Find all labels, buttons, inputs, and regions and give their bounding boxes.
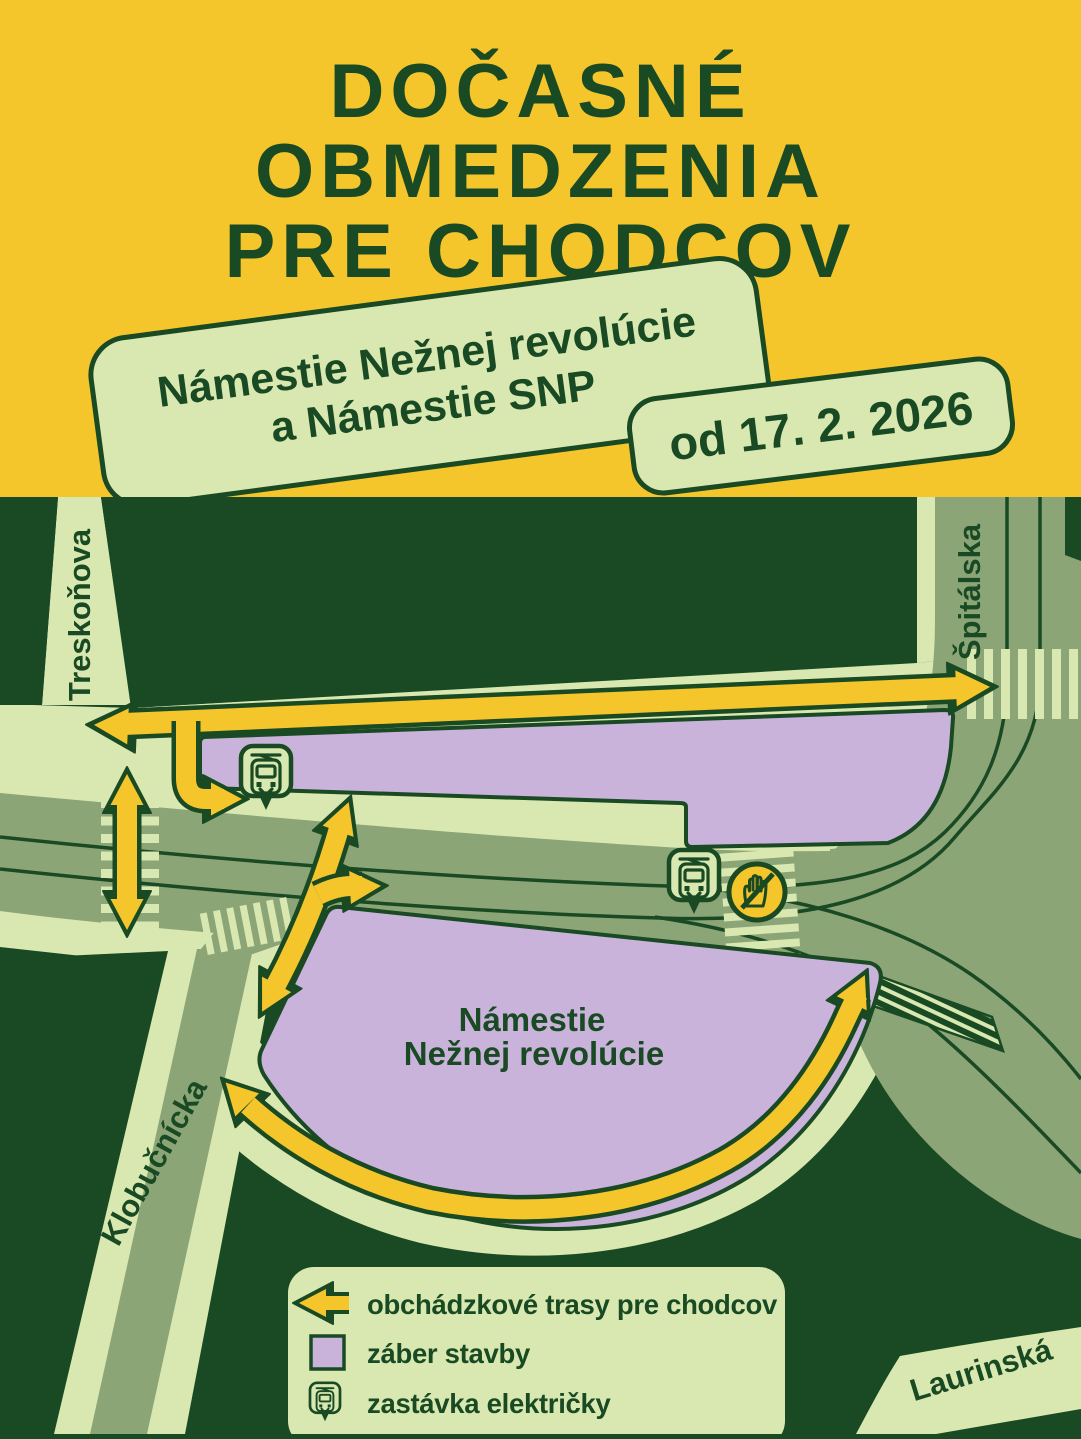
date-badge-text: od 17. 2. 2026 (666, 383, 976, 470)
title-line-2: OBMEDZENIA (0, 132, 1081, 212)
legend: obchádzkové trasy pre chodcov záber stav… (288, 1267, 785, 1434)
legend-item-detour-label: obchádzkové trasy pre chodcov (367, 1289, 778, 1320)
area-label-line-2: Nežnej revolúcie (404, 1035, 664, 1072)
area-label-line-1: Námestie (459, 1001, 606, 1038)
construction-area-swatch (311, 1336, 344, 1369)
street-label-spitalska: Špitálska (951, 523, 987, 660)
poster-title: DOČASNÉ OBMEDZENIA PRE CHODCOV (0, 52, 1081, 292)
title-line-1: DOČASNÉ (0, 52, 1081, 132)
spitalska-sidewalk (917, 497, 935, 663)
map-svg: Námestie Nežnej revolúcie (0, 497, 1081, 1434)
map: Námestie Nežnej revolúcie (0, 497, 1081, 1434)
building-northeast (1065, 497, 1081, 561)
poster-header: DOČASNÉ OBMEDZENIA PRE CHODCOV Námestie … (0, 0, 1081, 497)
legend-item-tram-label: zastávka električky (367, 1388, 612, 1419)
street-label-treskonova: Treskoňova (62, 528, 97, 701)
legend-item-construction-label: záber stavby (367, 1338, 531, 1369)
no-pedestrians-icon (729, 864, 785, 920)
